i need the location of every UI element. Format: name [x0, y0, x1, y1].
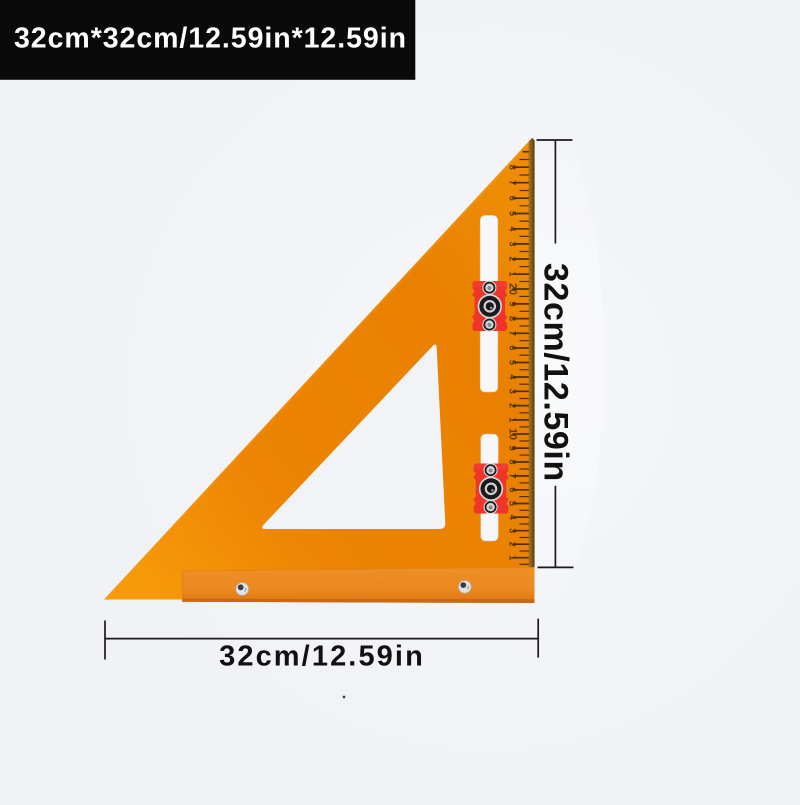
svg-text:4: 4 — [507, 226, 517, 232]
svg-text:10: 10 — [506, 428, 518, 440]
svg-text:7: 7 — [507, 180, 517, 185]
svg-text:2: 2 — [507, 542, 517, 547]
svg-text:4: 4 — [507, 515, 517, 521]
svg-text:5: 5 — [507, 360, 517, 365]
svg-text:1: 1 — [507, 555, 517, 560]
svg-text:7: 7 — [507, 473, 517, 478]
svg-text:8: 8 — [507, 459, 517, 464]
svg-text:9: 9 — [507, 446, 517, 451]
svg-text:5: 5 — [507, 211, 517, 216]
svg-text:32cm/12.59in: 32cm/12.59in — [537, 263, 575, 482]
svg-text:6: 6 — [507, 196, 517, 201]
svg-text:3: 3 — [507, 528, 517, 533]
svg-text:2: 2 — [507, 403, 517, 408]
svg-text:32cm*32cm/12.59in*12.59in: 32cm*32cm/12.59in*12.59in — [14, 23, 407, 55]
svg-text:1: 1 — [507, 417, 517, 422]
svg-text:2: 2 — [507, 256, 517, 261]
svg-text:8: 8 — [507, 165, 517, 170]
svg-text:1: 1 — [507, 272, 517, 277]
svg-text:3: 3 — [507, 241, 517, 246]
svg-text:32cm/12.59in: 32cm/12.59in — [219, 641, 425, 673]
svg-text:3: 3 — [507, 389, 517, 394]
svg-text:7: 7 — [507, 331, 517, 336]
svg-text:6: 6 — [507, 345, 517, 350]
svg-text:20: 20 — [506, 283, 518, 295]
svg-text:6: 6 — [507, 487, 517, 492]
svg-text:5: 5 — [507, 501, 517, 506]
svg-text:4: 4 — [507, 374, 517, 380]
svg-text:8: 8 — [507, 316, 517, 321]
svg-text:9: 9 — [507, 301, 517, 306]
